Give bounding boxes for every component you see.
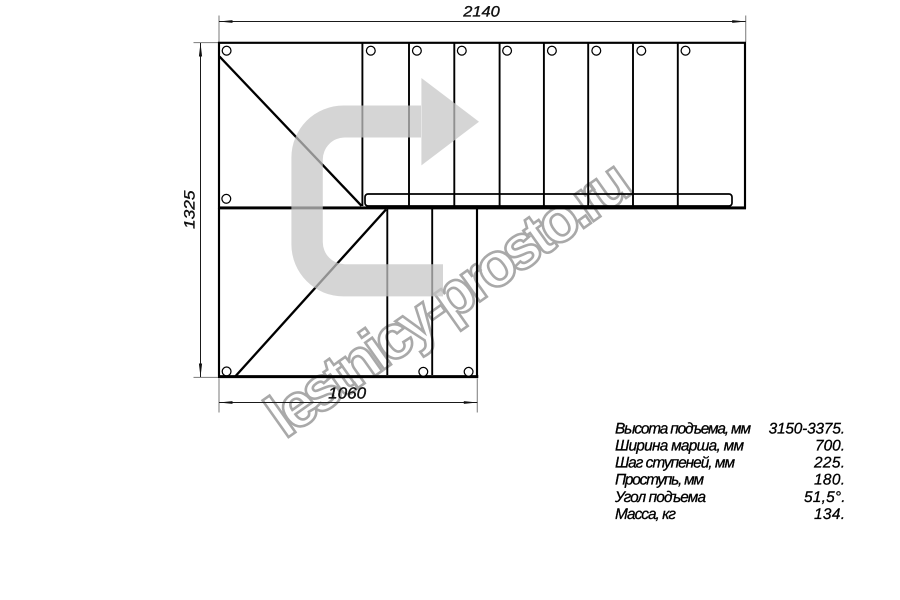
svg-text:Ширина марша, мм: Ширина марша, мм xyxy=(615,437,744,454)
svg-text:700.: 700. xyxy=(815,437,845,454)
svg-text:Угол подъема: Угол подъема xyxy=(614,489,706,506)
svg-text:Шаг ступеней, мм: Шаг ступеней, мм xyxy=(615,455,735,472)
svg-text:225.: 225. xyxy=(813,455,845,472)
svg-text:1060: 1060 xyxy=(328,386,366,403)
svg-text:Высота подъема, мм: Высота подъема, мм xyxy=(615,420,751,437)
svg-text:Масса, кг: Масса, кг xyxy=(615,506,676,523)
svg-text:Проступь, мм: Проступь, мм xyxy=(615,472,704,489)
svg-text:3150-3375.: 3150-3375. xyxy=(769,420,845,437)
svg-text:2140: 2140 xyxy=(462,3,500,20)
svg-text:180.: 180. xyxy=(814,472,845,489)
svg-text:1325: 1325 xyxy=(182,190,199,229)
svg-text:134.: 134. xyxy=(814,506,845,523)
svg-text:51,5°.: 51,5°. xyxy=(804,489,846,506)
